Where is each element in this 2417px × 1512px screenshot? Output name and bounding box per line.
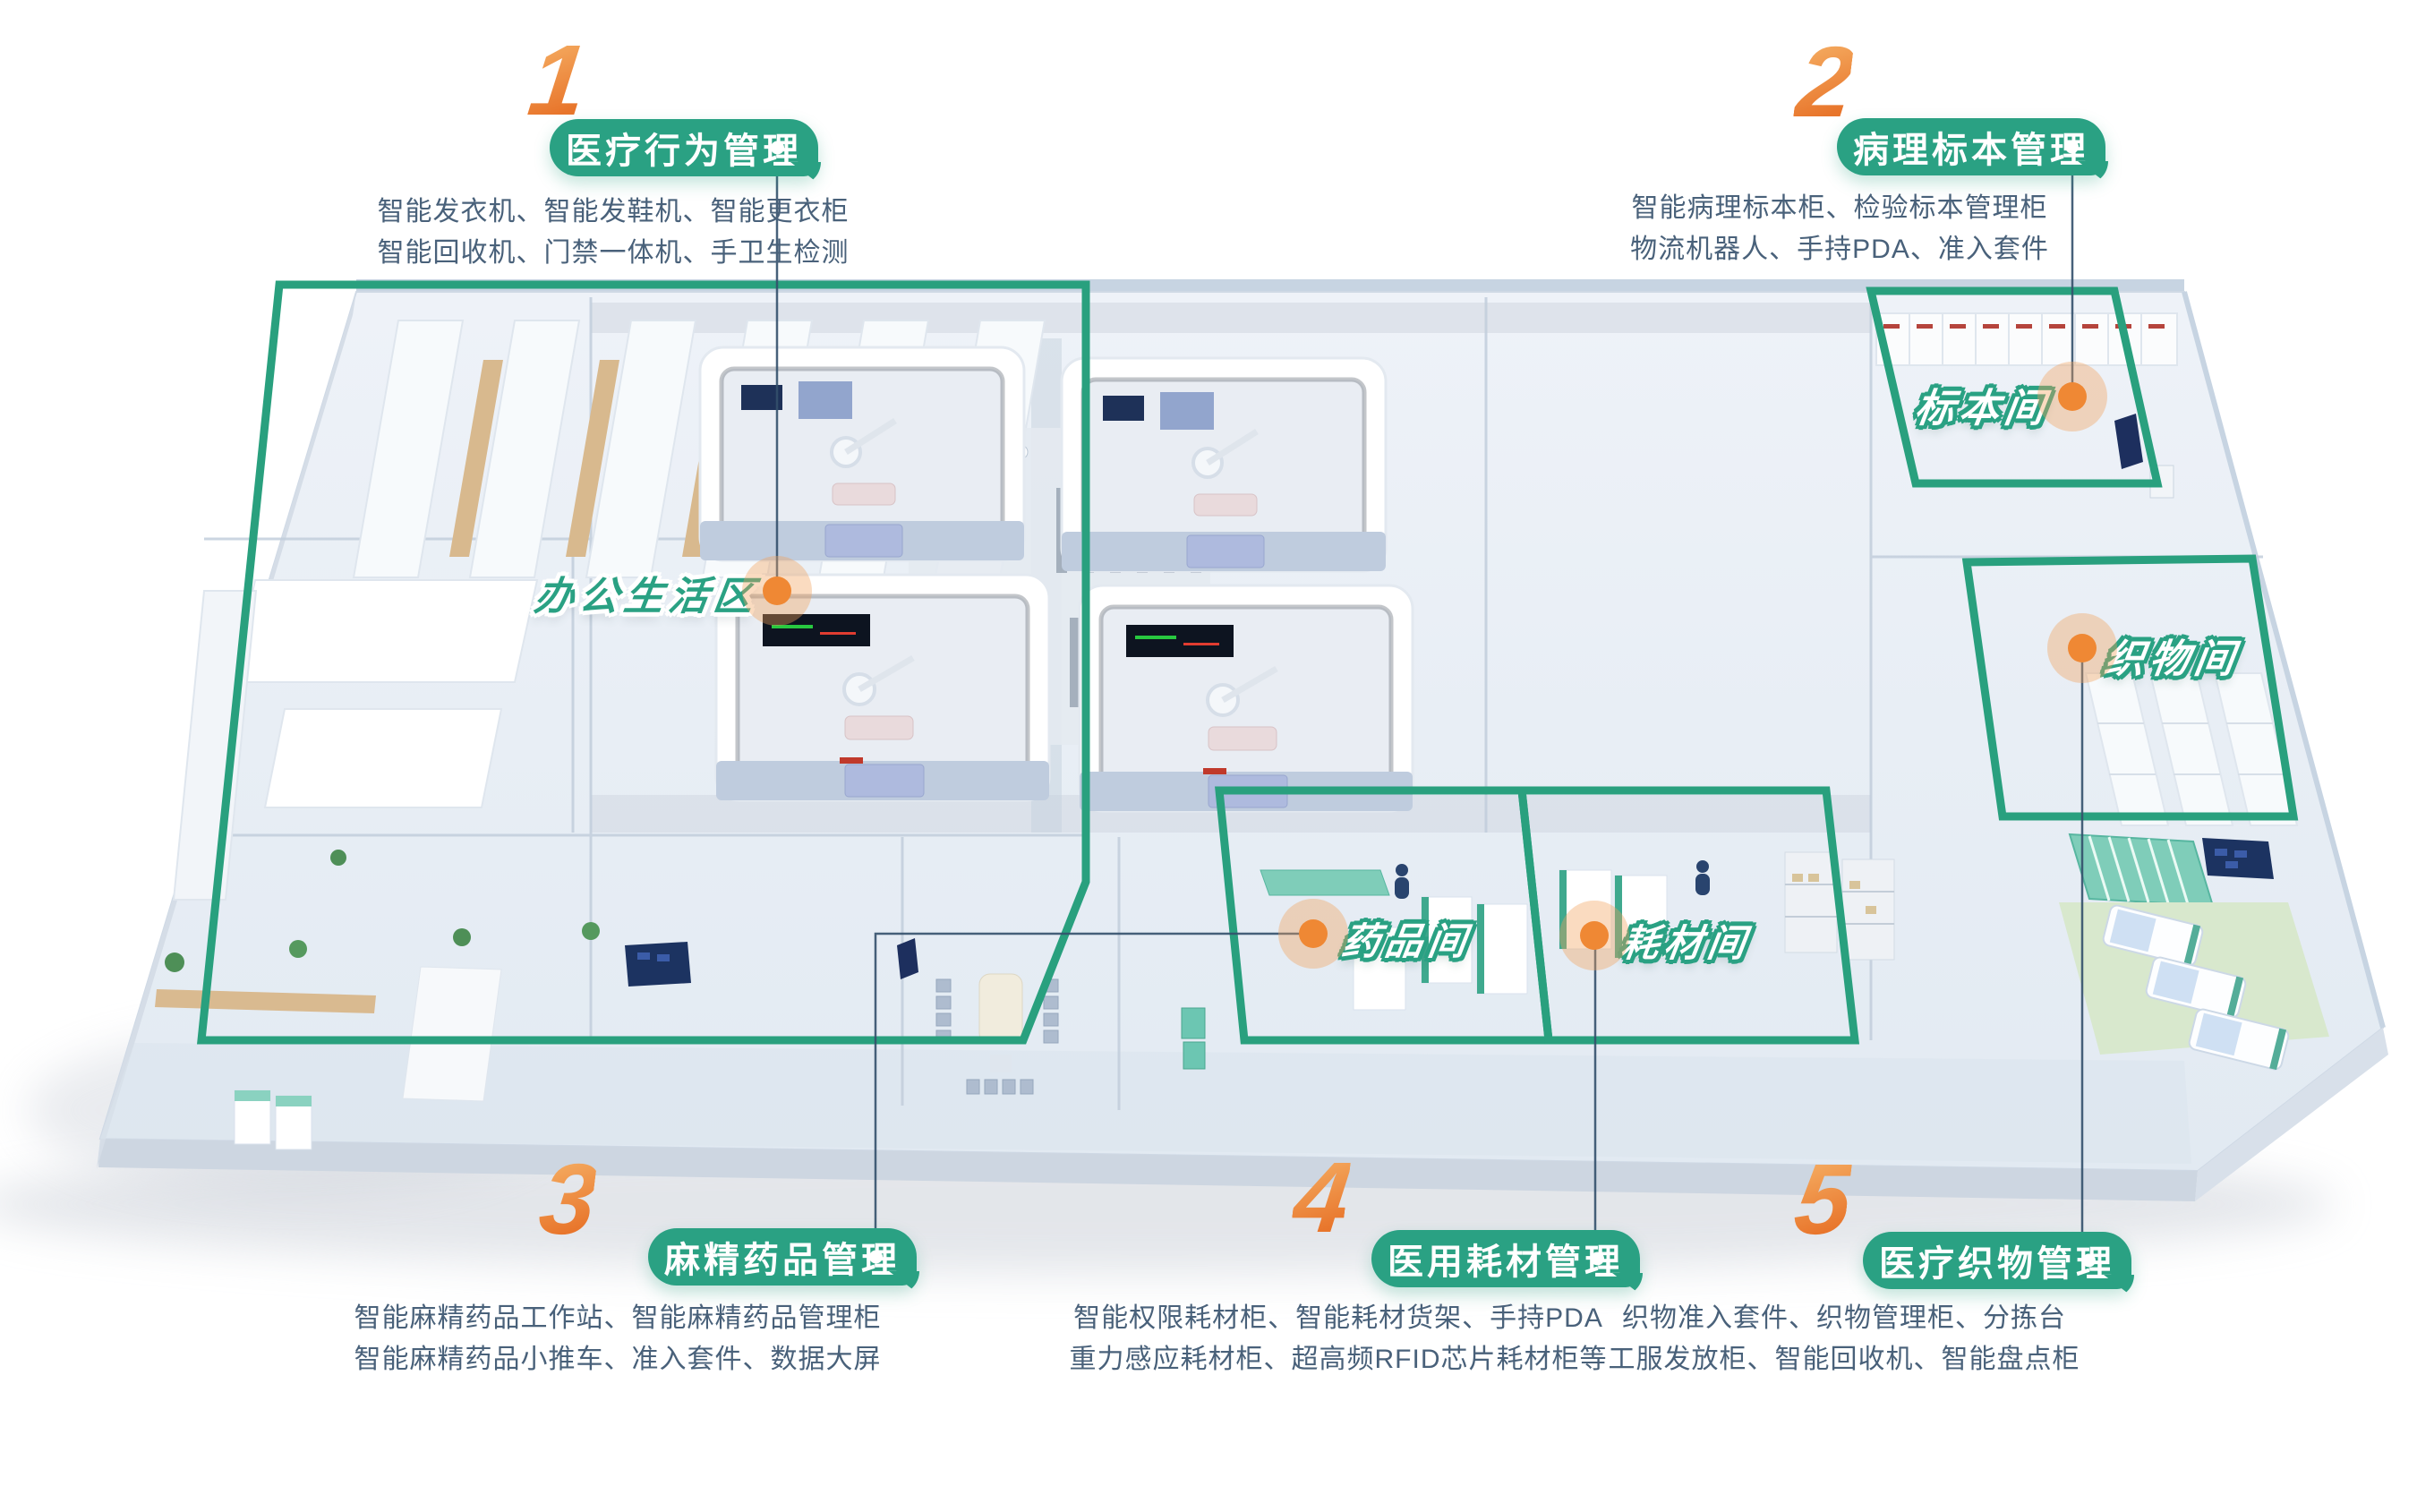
legend-description-line: 工服发放柜、智能回收机、智能盘点柜 [1531, 1339, 2157, 1380]
category-pill-medical-behavior: 医疗行为管理 [550, 119, 818, 176]
room-marker-dot-office [763, 577, 791, 605]
legend-description-line: 智能麻精药品工作站、智能麻精药品管理柜 [304, 1298, 931, 1339]
room-label-specimen: 标本间 [1912, 376, 2054, 433]
legend-description: 智能麻精药品工作站、智能麻精药品管理柜 智能麻精药品小推车、准入套件、数据大屏 [304, 1298, 931, 1380]
room-marker-dot-pharmacy [1299, 919, 1328, 948]
room-marker-dot-specimen [2058, 382, 2087, 411]
legend-description-line: 织物准入套件、织物管理柜、分拣台 [1531, 1298, 2157, 1339]
category-title: 医疗行为管理 [566, 122, 802, 174]
category-pill-medical-consumables: 医用耗材管理 [1371, 1230, 1640, 1287]
category-pill-narcotic-drugs: 麻精药品管理 [648, 1228, 917, 1286]
pill-anchor-dot [2082, 1254, 2096, 1268]
legend-description-line: 智能麻精药品小推车、准入套件、数据大屏 [304, 1339, 931, 1380]
category-pill-pathology-specimen: 病理标本管理 [1837, 118, 2105, 175]
person-icon [1395, 864, 1409, 899]
legend-description-line: 智能回收机、门禁一体机、手卫生检测 [300, 233, 927, 274]
legend-description: 智能发衣机、智能发鞋机、智能更衣柜 智能回收机、门禁一体机、手卫生检测 [300, 192, 927, 274]
room-label-textile: 织物间 [2102, 627, 2244, 684]
room-label-pharmacy: 药品间 [1339, 911, 1476, 966]
pill-anchor-dot [869, 1251, 883, 1264]
person-icon [1695, 860, 1710, 895]
room-marker-dot-consumable [1580, 921, 1609, 950]
legend-description-line: 智能发衣机、智能发鞋机、智能更衣柜 [300, 192, 927, 233]
pill-anchor-dot [1591, 1252, 1604, 1266]
room-label-office: 办公生活区 [532, 564, 764, 621]
pill-anchor-dot [771, 141, 784, 155]
legend-description-line: 智能病理标本柜、检验标本管理柜 [1526, 188, 2153, 229]
room-marker-dot-textile [2068, 634, 2097, 662]
category-title: 医疗织物管理 [1879, 1234, 2115, 1286]
pill-anchor-dot [2065, 141, 2079, 154]
legend-description-line: 物流机器人、手持PDA、准入套件 [1526, 229, 2153, 270]
legend-description: 织物准入套件、织物管理柜、分拣台 工服发放柜、智能回收机、智能盘点柜 [1531, 1298, 2157, 1380]
category-pill-medical-textile: 医疗织物管理 [1863, 1232, 2131, 1289]
category-title: 医用耗材管理 [1388, 1233, 1624, 1285]
category-title: 麻精药品管理 [664, 1231, 901, 1283]
category-title: 病理标本管理 [1853, 121, 2089, 173]
infographic-canvas: 1 医疗行为管理 智能发衣机、智能发鞋机、智能更衣柜 智能回收机、门禁一体机、手… [0, 0, 2417, 1512]
room-label-consumable: 耗材间 [1618, 913, 1755, 968]
legend-description: 智能病理标本柜、检验标本管理柜 物流机器人、手持PDA、准入套件 [1526, 188, 2153, 270]
